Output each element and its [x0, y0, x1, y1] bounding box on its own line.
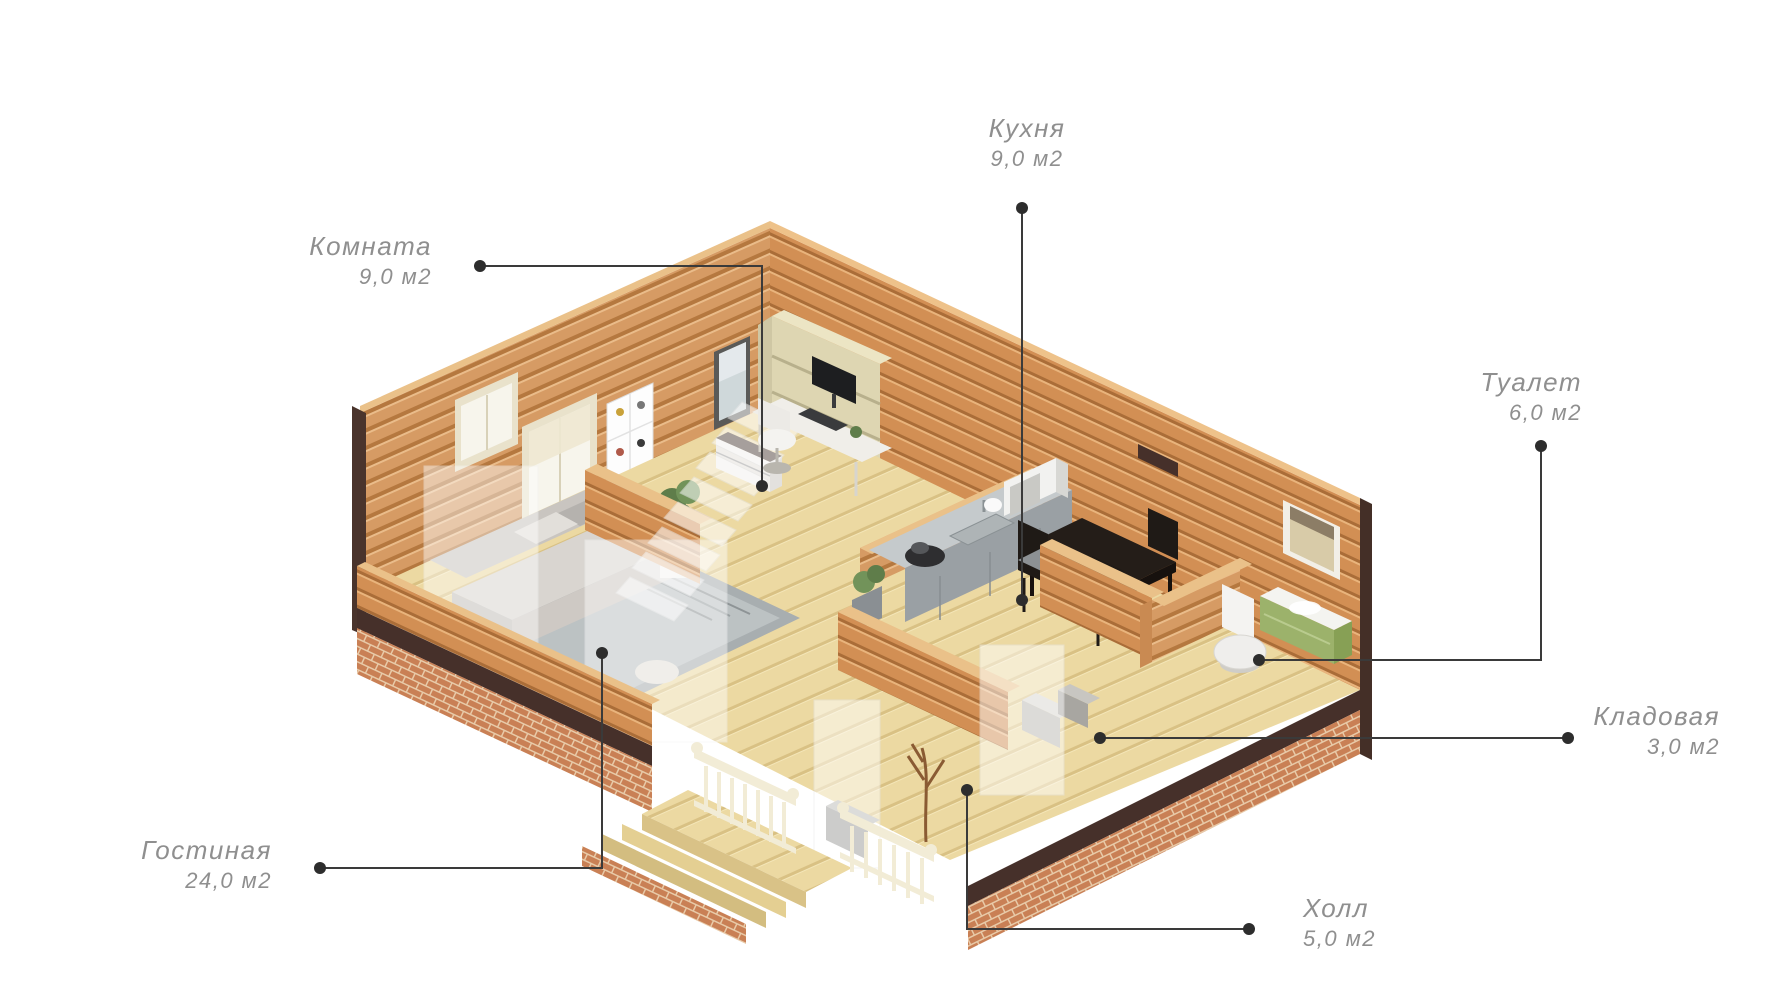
- room-label-storage: Кладовая3,0 м2: [1400, 700, 1720, 762]
- room-label-toilet: Туалет6,0 м2: [1262, 366, 1582, 428]
- room-label-hall: Холл5,0 м2: [1303, 892, 1623, 954]
- leader-dot-hall: [961, 784, 973, 796]
- room-label-room: Комната9,0 м2: [112, 230, 432, 292]
- leader-dot-living: [596, 647, 608, 659]
- leader-dot-toilet: [1535, 440, 1547, 452]
- room-label-living: Гостиная24,0 м2: [0, 834, 272, 896]
- room-name: Кухня: [867, 112, 1187, 144]
- leader-dot-hall: [1243, 923, 1255, 935]
- room-name: Комната: [112, 230, 432, 262]
- room-area: 9,0 м2: [112, 262, 432, 292]
- leader-dot-room: [756, 480, 768, 492]
- leader-dot-room: [474, 260, 486, 272]
- room-area: 5,0 м2: [1303, 924, 1623, 954]
- ghost-door: [814, 700, 880, 868]
- leader-dot-kitchen: [1016, 594, 1028, 606]
- ghost-door: [980, 645, 1064, 795]
- room-label-kitchen: Кухня9,0 м2: [867, 112, 1187, 174]
- floor-plan-stage: Кухня9,0 м2Комната9,0 м2Туалет6,0 м2Клад…: [0, 0, 1777, 1000]
- leader-dot-storage: [1094, 732, 1106, 744]
- room-name: Гостиная: [0, 834, 272, 866]
- room-area: 6,0 м2: [1262, 398, 1582, 428]
- leader-dot-toilet: [1253, 654, 1265, 666]
- right-corner-trim: [1360, 498, 1372, 760]
- room-area: 9,0 м2: [867, 144, 1187, 174]
- leader-dot-kitchen: [1016, 202, 1028, 214]
- kettle: [984, 498, 1002, 512]
- leader-dot-living: [314, 862, 326, 874]
- room-area: 24,0 м2: [0, 866, 272, 896]
- room-name: Туалет: [1262, 366, 1582, 398]
- room-area: 3,0 м2: [1400, 732, 1720, 762]
- room-name: Холл: [1303, 892, 1623, 924]
- room-name: Кладовая: [1400, 700, 1720, 732]
